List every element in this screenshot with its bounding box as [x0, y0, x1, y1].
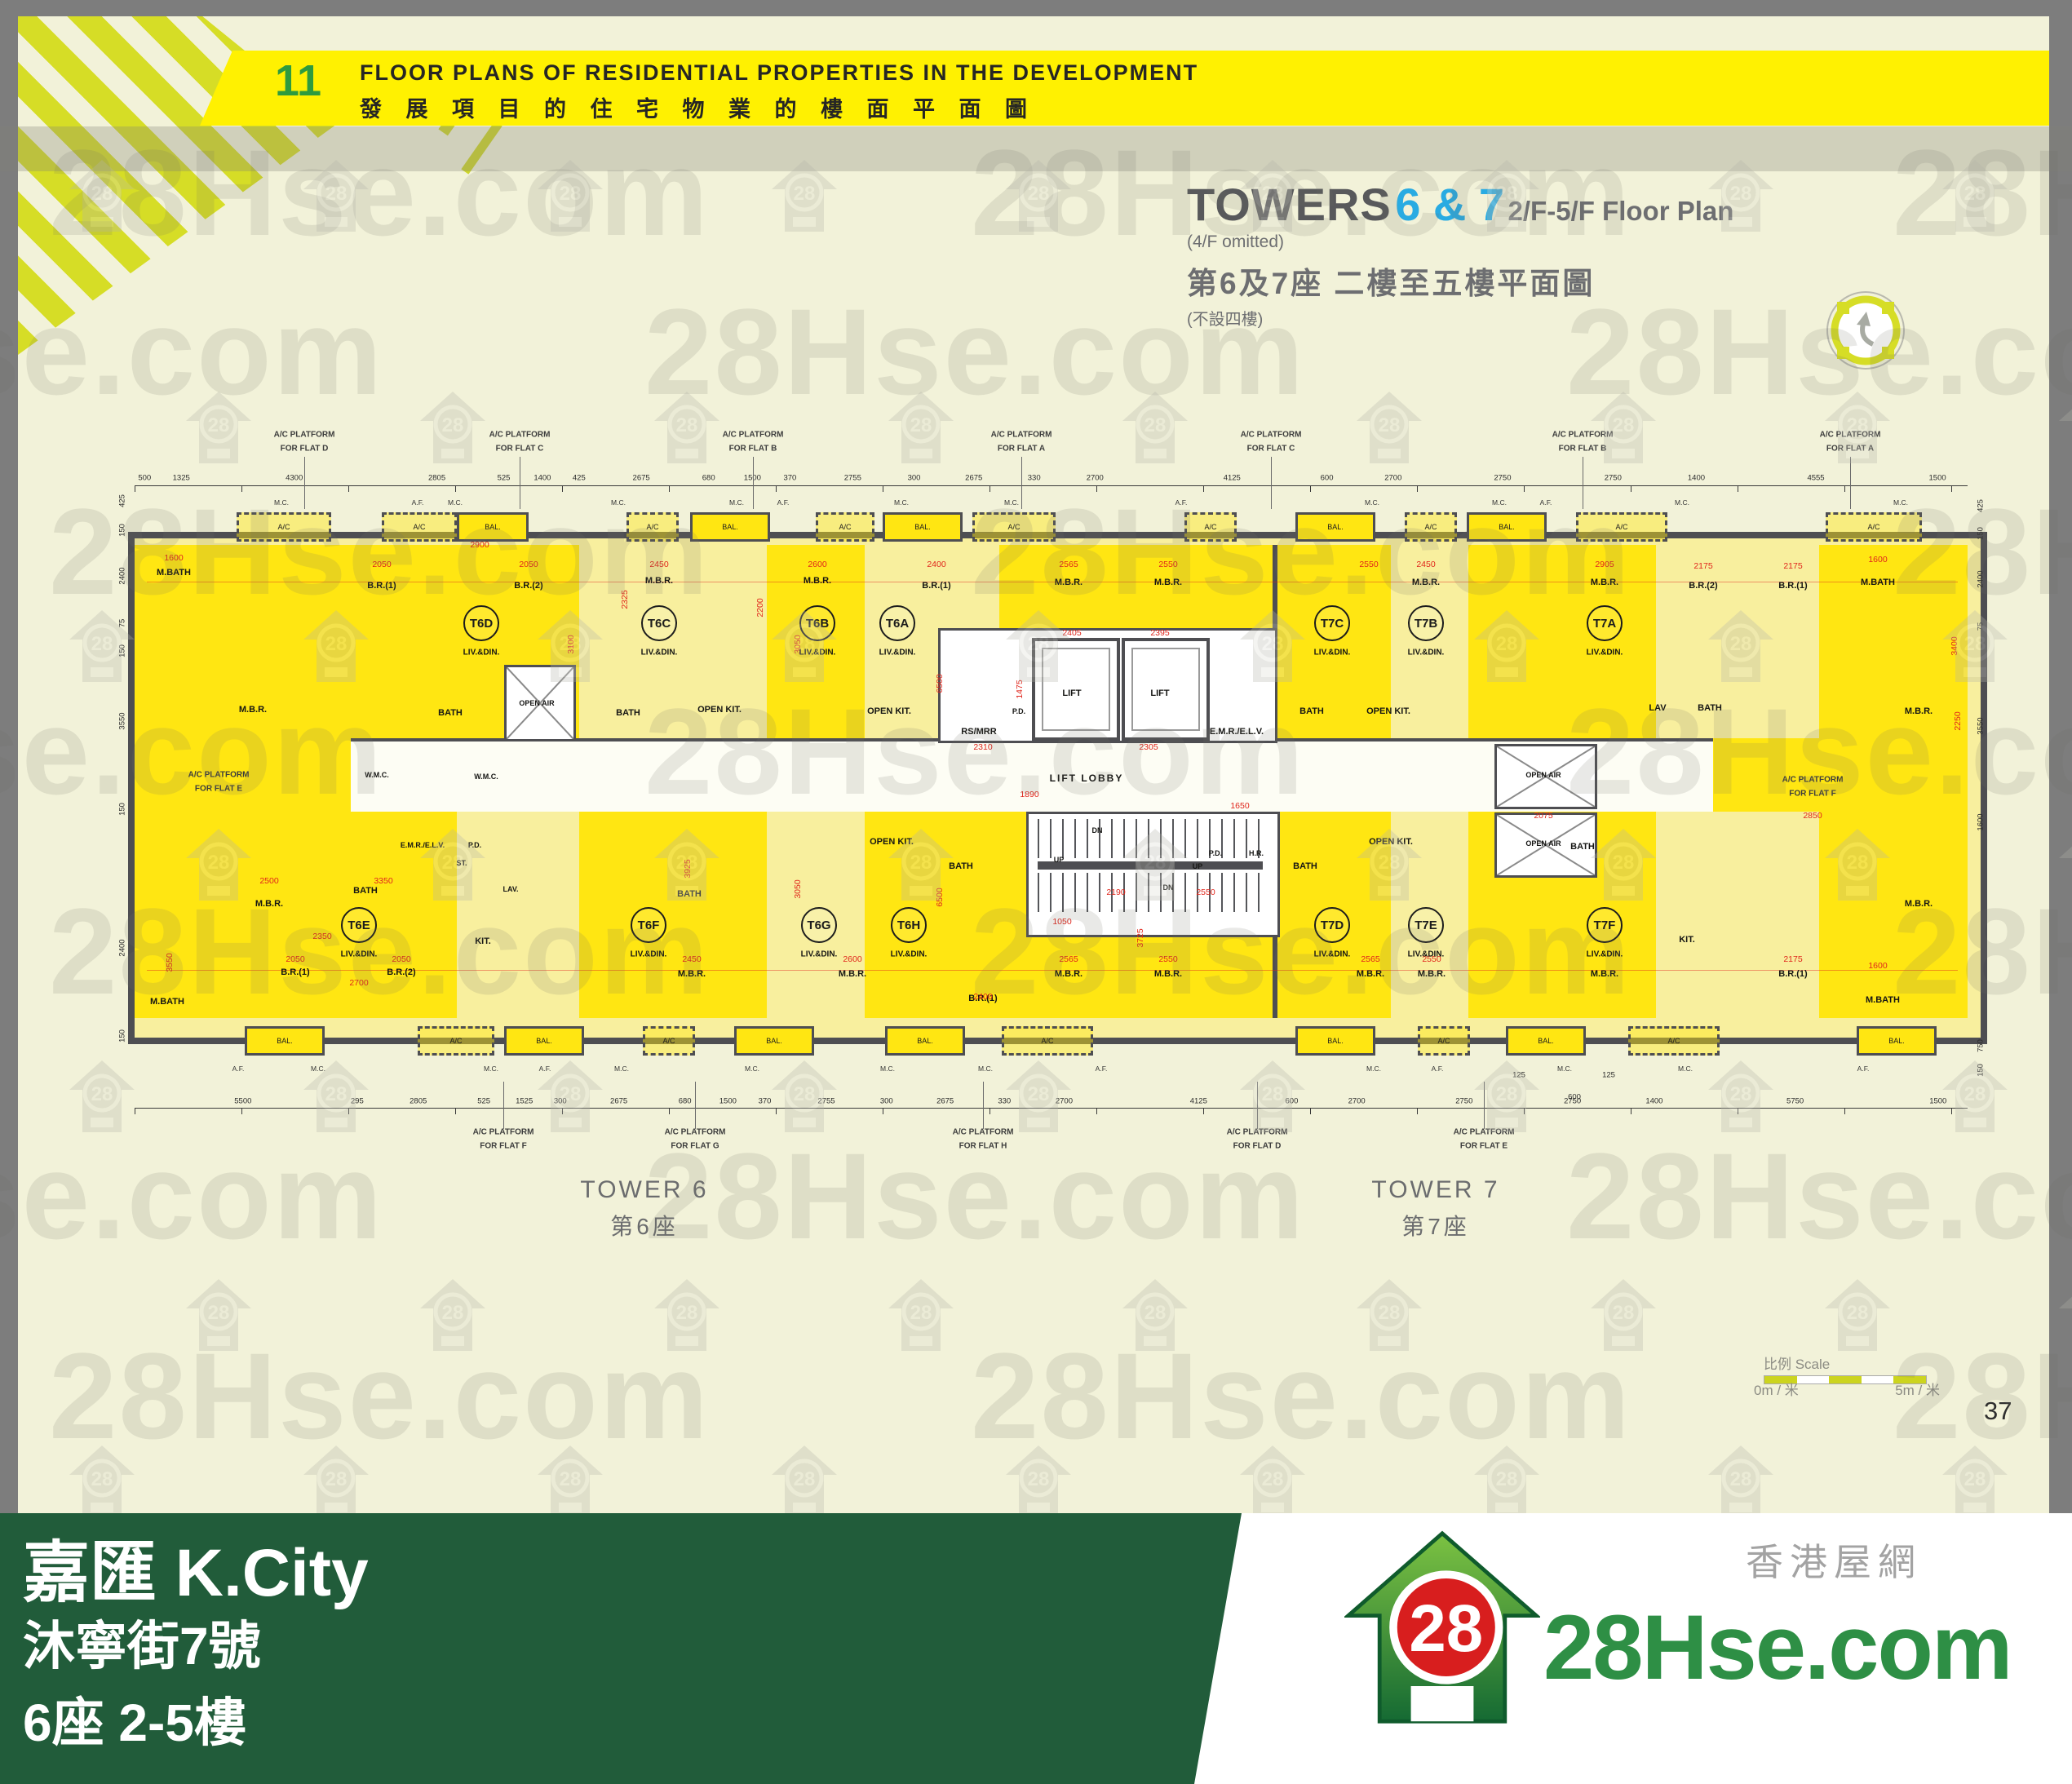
dimension-red: 2600	[808, 560, 826, 569]
dimension-black: 425	[1977, 499, 1986, 512]
room-label: M.B.R.	[1055, 578, 1082, 587]
mc-af-label: M.C.	[484, 1065, 498, 1073]
ac-platform-label: FOR FLAT E	[195, 785, 242, 794]
room-label: OPEN AIR	[1525, 839, 1561, 848]
room-label: M.B.R.	[255, 899, 283, 909]
room-label: B.R.(1)	[922, 581, 950, 591]
dimension-black: 525	[498, 474, 511, 483]
room-label: BATH	[438, 708, 463, 718]
dimension-red: 1600	[1868, 555, 1887, 564]
unit-livdin-label: LIV.&DIN.	[341, 950, 378, 959]
dimension-red: 2325	[620, 590, 630, 609]
leader-line	[753, 457, 754, 509]
dimension-black: 2700	[1087, 474, 1104, 483]
box-label: A/C	[839, 523, 851, 531]
dimension-black: 1400	[1645, 1097, 1662, 1106]
dimension-black: 2400	[118, 939, 127, 956]
balcony: BAL.	[245, 1026, 325, 1056]
room-label: M.BATH	[150, 997, 184, 1007]
box-label: A/C	[1867, 523, 1879, 531]
dimension-red: 3100	[566, 635, 576, 653]
mc-af-label: A.F.	[1857, 1065, 1870, 1073]
unit-livdin-label: LIV.&DIN.	[1314, 950, 1351, 959]
box-label: BAL.	[485, 523, 501, 531]
dimension-black: 1525	[516, 1097, 533, 1106]
dimension-red: 2550	[1158, 560, 1177, 569]
dimension-red: 2050	[392, 954, 410, 964]
room-label: M.B.R.	[1905, 899, 1933, 909]
unit-area-t6b	[767, 545, 870, 738]
dimension-red: 6500	[935, 888, 945, 906]
room-label: M.B.R.	[239, 705, 267, 715]
unit-label-t6a: T6A	[879, 605, 915, 641]
unit-area-t7a	[1468, 545, 1661, 738]
dimension-black: 150	[118, 644, 127, 657]
mc-af-label: M.C.	[1366, 1065, 1381, 1073]
dimension-line-top	[135, 485, 1968, 492]
box-label: BAL.	[1327, 1037, 1344, 1045]
ac-box: A/C	[1184, 512, 1237, 542]
balcony: BAL.	[1295, 1026, 1375, 1056]
dimension-black: 680	[679, 1097, 692, 1106]
room-label: W.M.C.	[365, 771, 389, 779]
dimension-black: 1500	[1929, 1097, 1946, 1106]
room-label: LIFT	[1062, 688, 1081, 698]
dimension-red: 1600	[164, 553, 183, 563]
room-label: M.B.R.	[1154, 969, 1182, 979]
ac-platform-label: A/C PLATFORM	[274, 431, 335, 440]
tower6-caption-en: TOWER 6	[580, 1176, 708, 1204]
leader-line	[520, 457, 520, 509]
box-label: BAL.	[277, 1037, 293, 1045]
room-label: B.R.(1)	[1778, 969, 1807, 979]
dimension-black: 150	[118, 524, 127, 537]
unit-area-t6c	[579, 545, 772, 738]
dimension-red: 2700	[349, 978, 368, 988]
dimension-red: 2565	[1059, 954, 1078, 964]
room-label: M.B.R.	[645, 576, 673, 586]
dimension-black: 2400	[118, 567, 127, 584]
ac-box: A/C	[237, 512, 331, 542]
dimension-red: 2400	[927, 560, 945, 569]
dimension-black: 525	[477, 1097, 490, 1106]
room-label: M.B.R.	[1055, 969, 1082, 979]
box-label: BAL.	[1888, 1037, 1905, 1045]
unit-label-t7e: T7E	[1408, 907, 1444, 943]
brochure-page: 11 FLOOR PLANS OF RESIDENTIAL PROPERTIES…	[0, 0, 2072, 1784]
room-label: BATH	[1698, 703, 1722, 713]
ac-platform-label: FOR FLAT F	[1789, 790, 1836, 799]
room-label: M.B.R.	[1591, 969, 1618, 979]
unit-label-t7f: T7F	[1587, 907, 1623, 943]
ac-platform-label: FOR FLAT G	[671, 1142, 719, 1151]
unit-label-t6e: T6E	[341, 907, 377, 943]
dimension-red: 2550	[1359, 560, 1378, 569]
balcony: BAL.	[1295, 512, 1375, 542]
room-label: ST.	[456, 859, 467, 867]
dimension-red: 1650	[1230, 801, 1249, 811]
dimension-red: 2200	[755, 598, 765, 617]
ac-platform-label: A/C PLATFORM	[473, 1128, 534, 1137]
unit-livdin-label: LIV.&DIN.	[1408, 649, 1445, 657]
unit-label-t6d: T6D	[463, 605, 499, 641]
dimension-black: 295	[351, 1097, 364, 1106]
dimension-black: 330	[1028, 474, 1041, 483]
ac-box: A/C	[418, 1026, 494, 1056]
leader-line	[1257, 1082, 1258, 1129]
unit-area-t7f-mbath	[1819, 812, 1968, 1018]
footer-green-panel: 嘉匯 K.City 沐寧街7號 6座 2-5樓	[0, 1513, 1248, 1784]
dimension-black: 2400	[1977, 570, 1986, 587]
dimension-black: 680	[702, 474, 715, 483]
ac-platform-label: A/C PLATFORM	[1454, 1128, 1515, 1137]
room-label: M.B.R.	[804, 576, 831, 586]
dimension-red: 1050	[1052, 917, 1071, 927]
ac-platform-label: A/C PLATFORM	[1782, 776, 1844, 785]
room-label: OPEN KIT.	[1369, 837, 1413, 847]
dimension-red: 2175	[1693, 561, 1712, 571]
dimension-black: 2805	[428, 474, 445, 483]
brand-zh: 香港屋網	[1746, 1533, 1974, 1587]
room-label: B.R.(1)	[1778, 581, 1807, 591]
dimension-black: 2700	[1348, 1097, 1366, 1106]
room-label: BATH	[353, 886, 378, 896]
svg-text:28: 28	[1409, 1591, 1483, 1666]
mc-af-label: M.C.	[1893, 498, 1908, 507]
room-label: BATH	[616, 708, 640, 718]
dimension-red: 2050	[519, 560, 538, 569]
room-label: OPEN KIT.	[867, 706, 911, 716]
box-label: A/C	[1615, 523, 1627, 531]
dimension-black: 3550	[1977, 717, 1986, 734]
room-label: M.B.R.	[1154, 578, 1182, 587]
mc-af-label: M.C.	[1678, 1065, 1693, 1073]
room-label: B.R.(1)	[281, 967, 309, 977]
box-label: BAL.	[914, 523, 931, 531]
unit-livdin-label: LIV.&DIN.	[1587, 950, 1623, 959]
unit-livdin-label: LIV.&DIN.	[1408, 950, 1445, 959]
unit-label-t7d: T7D	[1314, 907, 1350, 943]
balcony: BAL.	[457, 512, 529, 542]
unit-livdin-label: LIV.&DIN.	[641, 649, 678, 657]
dimension-red: 2905	[1595, 560, 1614, 569]
balcony: BAL.	[504, 1026, 584, 1056]
room-label: M.BATH	[1861, 578, 1895, 587]
scale-zero-label: 0m / 米	[1754, 1379, 1799, 1399]
dimension-black: 4125	[1190, 1097, 1207, 1106]
dimension-red: 6500	[935, 674, 945, 693]
room-label: DN	[1163, 883, 1174, 892]
ac-platform-label: FOR FLAT E	[1460, 1142, 1508, 1151]
leader-line	[1021, 457, 1022, 509]
leader-line	[695, 1082, 696, 1129]
unit-livdin-label: LIV.&DIN.	[1587, 649, 1623, 657]
ac-box: A/C	[626, 512, 679, 542]
ac-platform-label: FOR FLAT B	[1559, 445, 1607, 454]
dimension-black: 2700	[1384, 474, 1401, 483]
unit-livdin-label: LIV.&DIN.	[799, 649, 836, 657]
room-label: UP	[1054, 856, 1065, 864]
room-label: E.M.R./E.L.V.	[1210, 727, 1264, 737]
dimension-red: 2305	[1139, 742, 1158, 752]
room-label: UP	[1193, 862, 1203, 870]
box-label: A/C	[449, 1037, 462, 1045]
leader-line	[503, 1082, 504, 1129]
dimension-black: 500	[138, 474, 151, 483]
dimension-black: 4555	[1807, 474, 1824, 483]
mc-af-label: M.C.	[894, 498, 909, 507]
unit-livdin-label: LIV.&DIN.	[631, 950, 667, 959]
room-label: M.B.R.	[1357, 969, 1384, 979]
tower6-caption-zh: 第6座	[610, 1209, 679, 1242]
dimension-black: 600	[1321, 474, 1334, 483]
box-label: BAL.	[536, 1037, 552, 1045]
mc-af-label: M.C.	[611, 498, 626, 507]
dimension-red: 2395	[1150, 628, 1169, 638]
dimension-red: 2075	[1534, 811, 1552, 821]
box-label: A/C	[1437, 1037, 1450, 1045]
dimension-red: 2050	[286, 954, 304, 964]
leader-line	[1850, 457, 1851, 509]
box-label: A/C	[1667, 1037, 1680, 1045]
dimension-black: 1400	[533, 474, 551, 483]
dimension-red: 1600	[1868, 961, 1887, 971]
tower7-caption-zh: 第7座	[1401, 1209, 1470, 1242]
unit-area-t6f	[579, 812, 772, 1018]
leader-line	[1484, 1082, 1485, 1129]
room-label: B.R.(1)	[367, 581, 396, 591]
dimension-red: 2500	[259, 876, 278, 886]
balcony: BAL.	[734, 1026, 814, 1056]
dimension-red: 2450	[1416, 560, 1435, 569]
box-label: A/C	[1204, 523, 1216, 531]
room-label: BATH	[1299, 706, 1324, 716]
ac-platform-label: FOR FLAT A	[1826, 445, 1874, 454]
project-floors: 6座 2-5樓	[23, 1681, 246, 1756]
unit-label-t6b: T6B	[799, 605, 835, 641]
dimension-black: 425	[573, 474, 586, 483]
unit-label-t6f: T6F	[631, 907, 666, 943]
ac-platform-label: A/C PLATFORM	[1820, 431, 1881, 440]
room-label: OPEN KIT.	[1366, 706, 1410, 716]
dimension-black: 150	[118, 1029, 127, 1043]
dimension-red: 2175	[1783, 954, 1802, 964]
red-dimension-line	[147, 582, 1958, 582]
dimension-red: 1890	[1020, 790, 1038, 799]
ac-platform-label: FOR FLAT D	[1233, 1142, 1282, 1151]
room-label: OPEN KIT.	[697, 705, 742, 715]
ac-platform-label: A/C PLATFORM	[723, 431, 784, 440]
ac-platform-label: FOR FLAT A	[998, 445, 1045, 454]
room-label: LAV	[1649, 703, 1666, 713]
unit-livdin-label: LIV.&DIN.	[879, 649, 916, 657]
unit-livdin-label: LIV.&DIN.	[891, 950, 928, 959]
ac-platform-label: A/C PLATFORM	[1227, 1128, 1288, 1137]
dimension-black: 370	[759, 1097, 772, 1106]
box-label: BAL.	[1538, 1037, 1554, 1045]
room-label: 125	[1512, 1071, 1525, 1080]
ac-platform-label: A/C PLATFORM	[1241, 431, 1302, 440]
stair-flight	[1038, 819, 1263, 858]
room-label: H.R.	[1249, 849, 1264, 857]
box-label: A/C	[277, 523, 290, 531]
ac-platform-label: A/C PLATFORM	[489, 431, 551, 440]
unit-label-t7b: T7B	[1408, 605, 1444, 641]
dimension-red: 2450	[649, 560, 668, 569]
dimension-black: 1600	[1977, 813, 1986, 830]
dimension-black: 2755	[844, 474, 861, 483]
dimension-black: 2750	[1494, 474, 1511, 483]
dimension-red: 3925	[683, 859, 693, 878]
project-name: 嘉匯 K.City	[23, 1518, 369, 1615]
balcony: BAL.	[1857, 1026, 1937, 1056]
unit-area-t7a-mbath	[1819, 545, 1968, 738]
box-label: A/C	[413, 523, 425, 531]
ac-box: A/C	[1628, 1026, 1720, 1056]
box-label: BAL.	[917, 1037, 933, 1045]
room-label: B.R.(2)	[1689, 581, 1717, 591]
dimension-black: 150	[1977, 1064, 1986, 1077]
tower7-caption-en: TOWER 7	[1371, 1176, 1499, 1204]
ac-platform-label: A/C PLATFORM	[665, 1128, 726, 1137]
ac-box: A/C	[643, 1026, 695, 1056]
dimension-red: 3350	[374, 876, 392, 886]
room-label: KIT.	[1679, 935, 1695, 945]
box-label: A/C	[1041, 1037, 1053, 1045]
room-label: LAV.	[503, 885, 518, 893]
ac-box: A/C	[1405, 512, 1457, 542]
room-label: M.B.R.	[678, 969, 706, 979]
room-label: M.B.R.	[1905, 706, 1933, 716]
room-label: OPEN KIT.	[870, 837, 914, 847]
balcony: BAL.	[885, 1026, 965, 1056]
ac-box: A/C	[1418, 1026, 1470, 1056]
mc-af-label: M.C.	[978, 1065, 993, 1073]
dimension-red: 2450	[682, 954, 701, 964]
room-label: LIFT	[1150, 688, 1169, 698]
dimension-red: 2405	[1062, 628, 1081, 638]
box-label: A/C	[662, 1037, 675, 1045]
room-label: M.B.R.	[1412, 578, 1440, 587]
mc-af-label: M.C.	[448, 498, 463, 507]
stair-landing	[1038, 861, 1263, 870]
mc-af-label: M.C.	[729, 498, 744, 507]
leader-line	[304, 457, 305, 509]
footer: 嘉匯 K.City 沐寧街7號 6座 2-5樓 28 香港屋網 28Hse.co…	[0, 1513, 2072, 1784]
dimension-red: 2600	[843, 954, 861, 964]
dimension-red: 2190	[1106, 888, 1125, 897]
mc-af-label: M.C.	[1365, 498, 1379, 507]
mc-af-label: M.C.	[614, 1065, 629, 1073]
brand-text: 28Hse.com	[1543, 1595, 2011, 1700]
dimension-black: 4125	[1224, 474, 1241, 483]
ac-platform-label: FOR FLAT H	[959, 1142, 1007, 1151]
ac-box: A/C	[816, 512, 874, 542]
project-address: 沐寧街7號	[23, 1605, 261, 1680]
dimension-red: 3400	[1950, 636, 1959, 655]
mc-af-label: M.C.	[311, 1065, 325, 1073]
mc-af-label: M.C.	[1557, 1065, 1572, 1073]
dimension-black: 2805	[410, 1097, 427, 1106]
dimension-black: 330	[998, 1097, 1011, 1106]
scale-max-label: 5m / 米	[1895, 1379, 1940, 1399]
room-label: P.D.	[468, 841, 481, 849]
box-label: A/C	[1007, 523, 1020, 531]
dimension-black: 2750	[1455, 1097, 1472, 1106]
dimension-red: 2310	[973, 742, 992, 752]
dimension-black: 2750	[1564, 1097, 1581, 1106]
dimension-red: 2550	[1158, 954, 1177, 964]
unit-label-t7a: T7A	[1587, 605, 1623, 641]
mc-af-label: M.C.	[274, 498, 289, 507]
dimension-black: 1400	[1688, 474, 1705, 483]
unit-livdin-label: LIV.&DIN.	[1314, 649, 1351, 657]
room-label: E.M.R./E.L.V.	[401, 841, 445, 849]
mc-af-label: A.F.	[232, 1065, 245, 1073]
ac-platform-label: FOR FLAT D	[281, 445, 329, 454]
balcony: BAL.	[1467, 512, 1547, 542]
unit-livdin-label: LIV.&DIN.	[463, 649, 500, 657]
dimension-black: 1500	[719, 1097, 737, 1106]
dimension-black: 3550	[118, 712, 127, 729]
room-label: BATH	[1293, 861, 1317, 871]
mc-af-label: A.F.	[1096, 1065, 1108, 1073]
mc-af-label: M.C.	[880, 1065, 895, 1073]
box-label: BAL.	[1327, 523, 1344, 531]
dimension-black: 2755	[817, 1097, 835, 1106]
dimension-red: 3050	[793, 879, 803, 898]
unit-livdin-label: LIV.&DIN.	[801, 950, 838, 959]
dimension-black: 75	[118, 619, 127, 628]
room-label: BATH	[949, 861, 973, 871]
mc-af-label: M.C.	[1492, 498, 1507, 507]
room-label: M.BATH	[157, 568, 191, 578]
dimension-black: 5500	[234, 1097, 251, 1106]
room-label: BATH	[1570, 842, 1595, 852]
dimension-red: 2250	[1953, 711, 1963, 730]
box-label: BAL.	[766, 1037, 782, 1045]
dimension-black: 1500	[1929, 474, 1946, 483]
ac-platform-label: A/C PLATFORM	[188, 771, 250, 780]
leader-line	[1271, 457, 1272, 509]
room-label: LIFT LOBBY	[1050, 772, 1124, 784]
dimension-black: 75	[1977, 622, 1986, 631]
box-label: A/C	[1424, 523, 1437, 531]
room-label: B.R.(2)	[514, 581, 542, 591]
dimension-red: 3550	[165, 953, 175, 972]
unit-area-t7f-bedrooms	[1656, 812, 1824, 1018]
ac-platform-label: A/C PLATFORM	[991, 431, 1052, 440]
unit-label-t6g: T6G	[801, 907, 837, 943]
box-label: BAL.	[1499, 523, 1515, 531]
room-label: M.B.R.	[839, 969, 866, 979]
dimension-black: 150	[118, 803, 127, 816]
dimension-black: 600	[1286, 1097, 1299, 1106]
dimension-black: 425	[118, 494, 127, 507]
box-label: BAL.	[722, 523, 738, 531]
page-number: 37	[1984, 1397, 2012, 1426]
ac-platform-label: FOR FLAT B	[729, 445, 777, 454]
mc-af-label: A.F.	[1540, 498, 1552, 507]
dimension-black: 4300	[286, 474, 303, 483]
unit-label-t7c: T7C	[1314, 605, 1350, 641]
mc-af-label: A.F.	[1432, 1065, 1444, 1073]
dimension-red: 2565	[1361, 954, 1379, 964]
red-dimension-line	[147, 970, 1958, 971]
dimension-red: 2550	[1196, 888, 1215, 897]
dimension-black: 300	[554, 1097, 567, 1106]
balcony: BAL.	[1506, 1026, 1586, 1056]
